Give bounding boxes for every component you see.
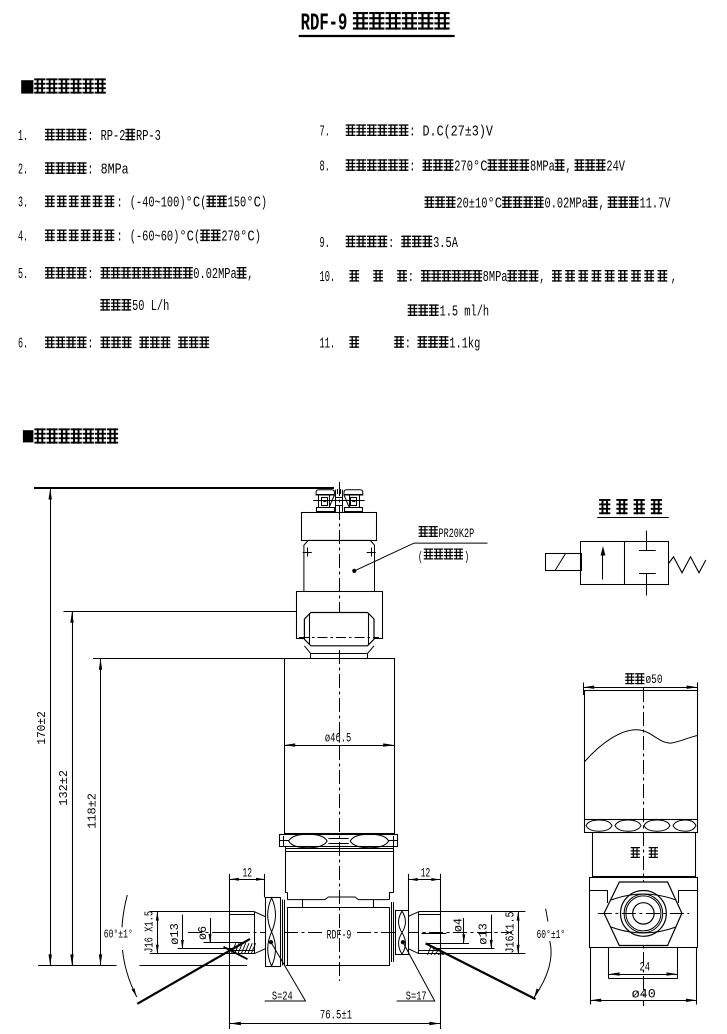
svg-text:3.5A: 3.5A	[433, 235, 458, 252]
svg-text:10.: 10.	[320, 269, 336, 286]
svg-text:燃油电磁开关: 燃油电磁开关	[353, 18, 425, 34]
svg-text:,: ,	[671, 269, 677, 286]
svg-text:24V: 24V	[606, 159, 625, 176]
svg-text::: :	[409, 159, 415, 176]
svg-text:150: 150	[228, 195, 247, 212]
svg-text:50 L/h: 50 L/h	[132, 298, 169, 315]
svg-text:10: 10	[475, 196, 487, 213]
svg-text:压力下: 压力下	[507, 271, 543, 286]
svg-text::: :	[409, 124, 415, 141]
svg-text::: :	[87, 336, 93, 353]
svg-text:1.5 ml/h: 1.5 ml/h	[440, 304, 490, 321]
svg-text:1.: 1.	[18, 128, 28, 145]
svg-text:不小于: 不小于	[100, 300, 136, 315]
svg-text:,: ,	[539, 269, 545, 286]
svg-text:60°±1°: 60°±1°	[537, 928, 566, 942]
svg-text:118±2: 118±2	[86, 793, 100, 829]
svg-text:): )	[261, 195, 267, 212]
svg-text:外形安装尺寸图: 外形安装尺寸图	[34, 432, 118, 448]
svg-text:°C: °C	[179, 229, 194, 246]
svg-text:): )	[464, 549, 469, 564]
svg-text:60°±1°: 60°±1°	[104, 928, 133, 942]
svg-text:76.5±1: 76.5±1	[320, 1007, 352, 1022]
svg-text:不大于: 不大于	[408, 305, 444, 320]
svg-text:(-60~60): (-60~60)	[130, 229, 180, 246]
svg-text:2.: 2.	[18, 162, 28, 179]
svg-text:短时、: 短时、	[101, 337, 137, 352]
svg-text:°C: °C	[473, 159, 488, 176]
svg-text:°C: °C	[246, 195, 261, 212]
svg-text:,: ,	[565, 159, 571, 176]
svg-text:°C: °C	[487, 196, 502, 213]
svg-text:重复、: 重复、	[139, 337, 175, 352]
svg-text:温度为: 温度为	[423, 159, 459, 175]
svg-text:7.: 7.	[320, 124, 330, 141]
svg-text:漏: 漏	[349, 271, 361, 286]
svg-text::: :	[117, 195, 123, 212]
svg-text:8.: 8.	[320, 159, 330, 176]
svg-text:J16X1.5: J16X1.5	[505, 911, 518, 953]
svg-text:20: 20	[456, 196, 468, 213]
svg-text:工作介质温度: 工作介质温度	[45, 195, 117, 211]
svg-text:0.02MPa: 0.02MPa	[545, 196, 588, 213]
svg-text::: :	[117, 229, 123, 246]
svg-text:周围环境温度: 周围环境温度	[45, 229, 117, 245]
svg-text:,: ,	[599, 196, 605, 213]
svg-text:): )	[255, 229, 261, 246]
svg-text:8MPa: 8MPa	[101, 162, 129, 179]
svg-text:RDF-9: RDF-9	[327, 927, 352, 942]
svg-text:不大于: 不大于	[575, 160, 611, 175]
svg-text:主要技术性能: 主要技术性能	[34, 83, 106, 98]
svg-text:8MPa: 8MPa	[483, 269, 508, 286]
svg-text:工作介质: 工作介质	[45, 129, 93, 144]
svg-text:入口: 入口	[631, 848, 655, 862]
svg-text:0.02MPa: 0.02MPa	[193, 266, 236, 283]
svg-text:11.: 11.	[320, 335, 336, 352]
svg-text:S=24: S=24	[272, 989, 293, 1003]
svg-text:ø4: ø4	[452, 918, 465, 932]
svg-text:ø13: ø13	[169, 923, 182, 945]
svg-text:132±2: 132±2	[57, 770, 71, 806]
svg-text:D.C(27±3)V: D.C(27±3)V	[423, 124, 493, 141]
svg-text:温度为: 温度为	[425, 196, 461, 212]
svg-text:11.7V: 11.7V	[640, 196, 671, 213]
svg-text:工作压力: 工作压力	[45, 163, 93, 178]
svg-text:RP-3: RP-3	[136, 128, 161, 145]
svg-text::: :	[87, 162, 93, 179]
svg-text:PR20K2P: PR20K2P	[439, 526, 475, 541]
svg-text:分循环: 分循环	[178, 337, 214, 352]
svg-text:不大于: 不大于	[608, 197, 644, 212]
svg-text:12: 12	[421, 865, 431, 880]
svg-text:出口管嘴处的漏油量: 出口管嘴处的漏油量	[552, 270, 660, 286]
svg-text:、压力为: 、压力为	[502, 197, 550, 212]
svg-text:5.: 5.	[18, 266, 28, 283]
svg-text:°C: °C	[240, 229, 255, 246]
svg-text:RP-2: RP-2	[101, 128, 126, 145]
svg-text::: :	[405, 335, 411, 352]
svg-text:、压力为: 、压力为	[488, 160, 536, 175]
svg-text:3.: 3.	[18, 195, 28, 212]
svg-text::: :	[408, 269, 414, 286]
svg-text:额定工作电压: 额定工作电压	[346, 124, 418, 140]
svg-text:不大于: 不大于	[401, 236, 437, 251]
svg-text:1.1kg: 1.1kg	[449, 335, 480, 352]
svg-text:油: 油	[373, 271, 385, 286]
svg-text:功能符号: 功能符号	[599, 502, 647, 518]
svg-text:270: 270	[454, 159, 473, 176]
svg-text:工作流量: 工作流量	[45, 268, 93, 283]
svg-text:净: 净	[349, 337, 361, 352]
svg-text:°C: °C	[186, 195, 201, 212]
svg-text::: :	[388, 235, 394, 252]
svg-text:工作电流: 工作电流	[346, 236, 394, 251]
svg-text:RDF-9: RDF-9	[301, 10, 348, 37]
svg-text::: :	[87, 266, 93, 283]
svg-text:(-40~100): (-40~100)	[130, 195, 186, 212]
svg-text:ø13: ø13	[478, 923, 491, 945]
svg-text:,: ,	[247, 266, 253, 283]
svg-text:工作方式: 工作方式	[45, 336, 93, 352]
svg-text:170±2: 170±2	[35, 711, 49, 745]
svg-text:8MPa: 8MPa	[530, 159, 555, 176]
svg-text:12: 12	[243, 866, 253, 881]
svg-text:270: 270	[221, 229, 240, 246]
svg-text:6.: 6.	[18, 336, 28, 353]
svg-text:最小工作电压: 最小工作电压	[346, 160, 418, 175]
svg-text:不大于: 不大于	[418, 337, 454, 352]
svg-text:(: (	[418, 549, 423, 564]
svg-text:ø6: ø6	[197, 926, 210, 940]
svg-text::: :	[87, 128, 93, 145]
svg-text:ø46.5: ø46.5	[325, 731, 351, 746]
svg-text:ø50: ø50	[646, 672, 663, 687]
svg-text:4.: 4.	[18, 229, 28, 246]
svg-text:J16 X1.5: J16 X1.5	[144, 911, 157, 953]
svg-text:S=17: S=17	[406, 989, 427, 1003]
svg-text:24: 24	[640, 960, 651, 975]
svg-text:9.: 9.	[320, 235, 330, 252]
svg-text:ø40: ø40	[632, 986, 656, 1001]
